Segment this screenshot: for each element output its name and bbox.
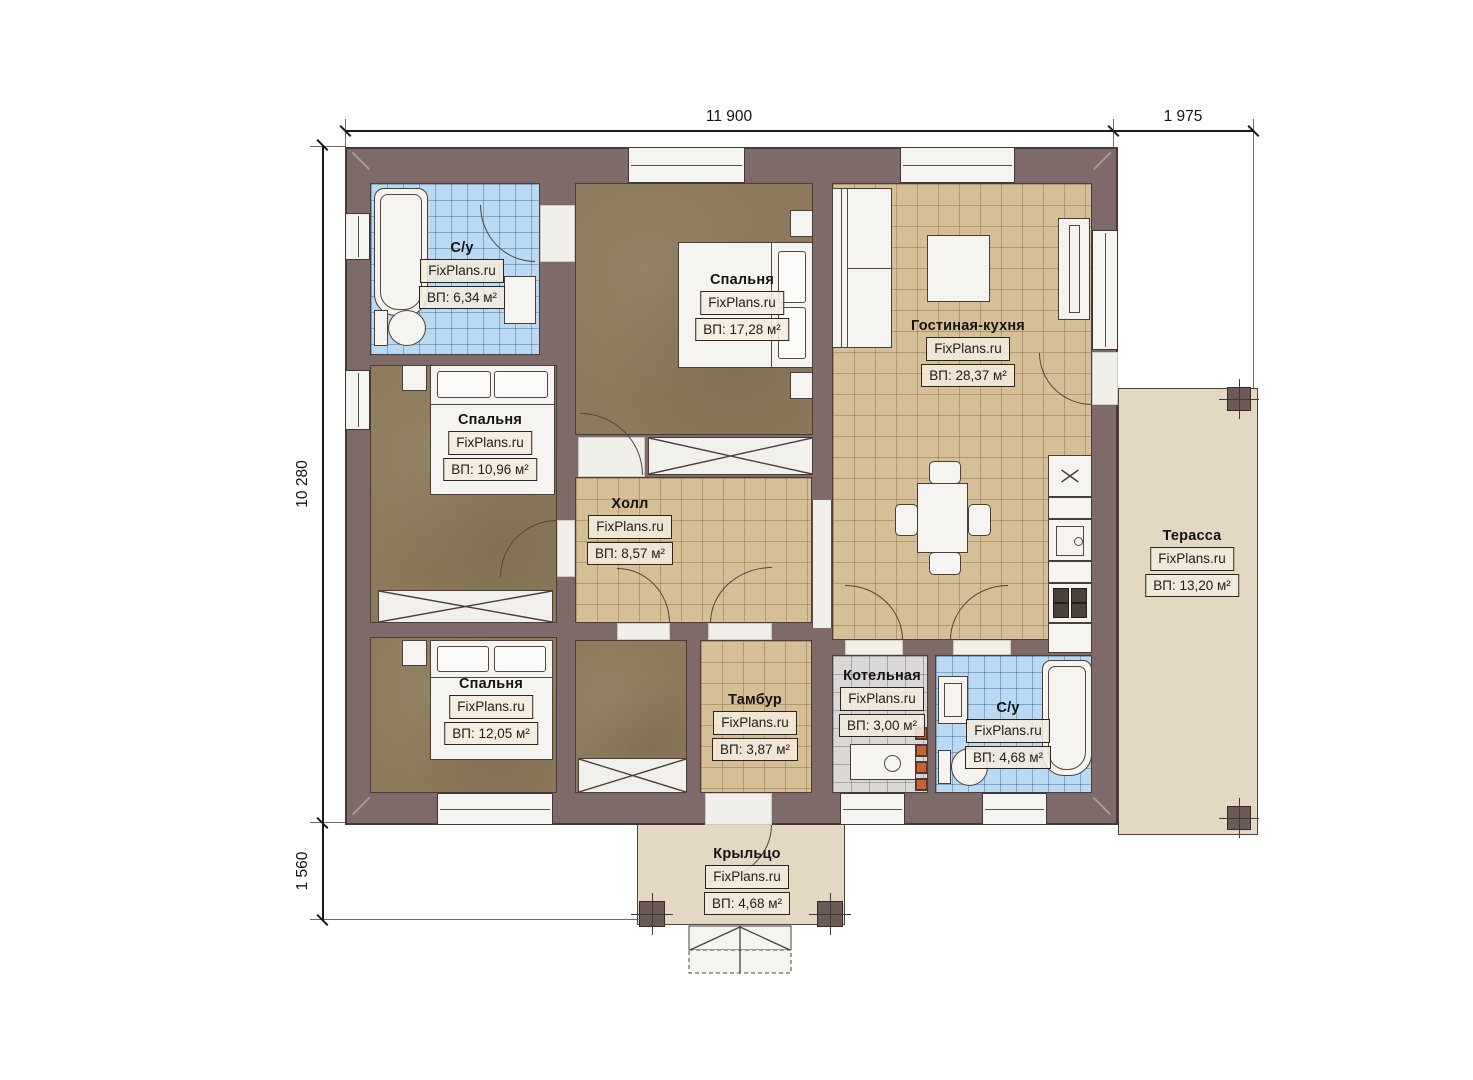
passage-hall-living [812, 500, 832, 628]
door-opening-bathroom-bottom [953, 640, 1011, 655]
room-area: ВП: 13,20 м² [1145, 574, 1239, 598]
room-area: ВП: 12,05 м² [444, 722, 538, 746]
toilet [938, 750, 951, 784]
extension-line [310, 822, 345, 823]
floor-plan: С/у FixPlans.ru ВП: 6,34 м² Спальня FixP… [0, 0, 1473, 1080]
toilet [388, 310, 426, 346]
wardrobe-icon [378, 590, 553, 623]
nightstand [790, 372, 813, 399]
room-area: ВП: 6,34 м² [419, 286, 505, 310]
coffee-table [927, 235, 990, 302]
door-opening-closet [617, 623, 670, 640]
room-name: Крыльцо [713, 846, 780, 862]
toilet [374, 310, 388, 346]
dimension-line-left [322, 145, 324, 823]
boiler-unit [850, 744, 916, 780]
room-label-vestibule: Тамбур FixPlans.ru ВП: 3,87 м² [712, 692, 798, 761]
room-label-bedroom-middle: Спальня FixPlans.ru ВП: 10,96 м² [443, 412, 537, 481]
room-name: Спальня [459, 676, 523, 692]
window [628, 147, 745, 183]
sink [938, 676, 968, 724]
kitchen-counter [1048, 623, 1092, 653]
fridge [1048, 455, 1092, 497]
porch-post [639, 901, 665, 927]
room-label-bedroom-top: Спальня FixPlans.ru ВП: 17,28 м² [695, 272, 789, 341]
nightstand [402, 365, 427, 391]
kitchen-counter [1048, 561, 1092, 583]
dimension-top-main: 11 900 [706, 108, 752, 126]
watermark: FixPlans.ru [420, 259, 504, 283]
watermark: FixPlans.ru [840, 687, 924, 711]
sofa [832, 188, 892, 348]
stove [1048, 583, 1092, 623]
extension-line [310, 146, 345, 147]
room-name: Спальня [710, 272, 774, 288]
porch-post [817, 901, 843, 927]
watermark: FixPlans.ru [449, 695, 533, 719]
door-opening-boiler [845, 640, 903, 655]
terrace-post [1227, 806, 1251, 830]
dimension-left-main: 10 280 [294, 460, 312, 507]
dimension-top-right: 1 975 [1164, 108, 1203, 126]
room-area: ВП: 8,57 м² [587, 542, 673, 566]
room-label-living-kitchen: Гостиная-кухня FixPlans.ru ВП: 28,37 м² [911, 318, 1025, 387]
watermark: FixPlans.ru [705, 865, 789, 889]
window [345, 213, 370, 260]
room-area: ВП: 3,00 м² [839, 714, 925, 738]
kitchen-counter [1048, 497, 1092, 519]
room-name: С/у [450, 240, 473, 256]
window [840, 793, 905, 825]
nightstand [402, 640, 427, 666]
wardrobe-icon [578, 758, 687, 793]
wardrobe-icon [648, 437, 813, 475]
room-label-bathroom-top: С/у FixPlans.ru ВП: 6,34 м² [419, 240, 505, 309]
tv-stand [1058, 218, 1090, 320]
watermark: FixPlans.ru [448, 431, 532, 455]
dimension-left-bottom: 1 560 [294, 852, 312, 891]
room-label-boiler: Котельная FixPlans.ru ВП: 3,00 м² [839, 668, 925, 737]
window [437, 793, 553, 825]
extension-line [310, 919, 640, 920]
room-name: Гостиная-кухня [911, 318, 1025, 334]
room-area: ВП: 28,37 м² [921, 364, 1015, 388]
room-name: Спальня [458, 412, 522, 428]
dining-chair [895, 504, 918, 536]
room-name: Котельная [843, 668, 921, 684]
watermark: FixPlans.ru [1150, 547, 1234, 571]
door-opening-bathroom-top [540, 205, 575, 262]
dining-chair [929, 552, 961, 575]
room-label-hall: Холл FixPlans.ru ВП: 8,57 м² [587, 496, 673, 565]
room-area: ВП: 4,68 м² [704, 892, 790, 916]
room-area: ВП: 3,87 м² [712, 738, 798, 762]
dining-chair [929, 461, 961, 484]
dimension-line-top [345, 130, 1113, 132]
terrace-floor [1118, 388, 1258, 835]
room-area: ВП: 10,96 м² [443, 458, 537, 482]
nightstand [790, 210, 813, 237]
window [982, 793, 1047, 825]
watermark: FixPlans.ru [926, 337, 1010, 361]
room-area: ВП: 17,28 м² [695, 318, 789, 342]
kitchen-sink [1048, 519, 1092, 561]
window [345, 370, 370, 430]
watermark: FixPlans.ru [713, 711, 797, 735]
room-label-terrace: Терасса FixPlans.ru ВП: 13,20 м² [1145, 528, 1239, 597]
room-name: Терасса [1163, 528, 1222, 544]
room-name: С/у [996, 700, 1019, 716]
watermark: FixPlans.ru [966, 719, 1050, 743]
room-label-bathroom-bottom: С/у FixPlans.ru ВП: 4,68 м² [965, 700, 1051, 769]
room-area: ВП: 4,68 м² [965, 746, 1051, 770]
room-name: Холл [611, 496, 648, 512]
porch-steps [688, 925, 792, 975]
dimension-line-left-bottom [322, 823, 324, 920]
watermark: FixPlans.ru [700, 291, 784, 315]
watermark: FixPlans.ru [588, 515, 672, 539]
room-name: Тамбур [728, 692, 782, 708]
terrace-post [1227, 387, 1251, 411]
door-opening-bedroom-middle [557, 520, 575, 577]
dimension-line-top-right [1113, 130, 1253, 132]
door-opening-terrace [1092, 352, 1118, 405]
window [900, 147, 1015, 183]
door-opening-vestibule [708, 623, 772, 640]
door-opening-entry [705, 793, 772, 825]
room-label-bedroom-bottom: Спальня FixPlans.ru ВП: 12,05 м² [444, 676, 538, 745]
room-label-porch: Крыльцо FixPlans.ru ВП: 4,68 м² [704, 846, 790, 915]
bathroom-cabinet [504, 276, 536, 324]
dining-chair [968, 504, 991, 536]
dining-table [917, 483, 968, 553]
extension-line [1253, 119, 1254, 388]
window [1092, 230, 1118, 350]
